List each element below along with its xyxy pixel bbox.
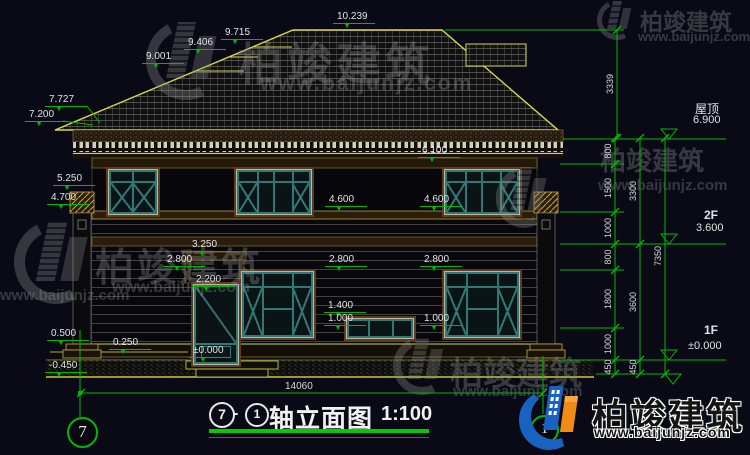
dim-segment: 800	[602, 131, 614, 171]
elevation-label: 1.400	[324, 300, 366, 313]
elevation-label: 0.500	[47, 328, 89, 341]
elevation-label: 9.715	[221, 27, 263, 40]
elevation-label: 0.250	[109, 337, 151, 350]
elevation-label: 2.200	[192, 274, 234, 287]
elevation-label: 6.100	[418, 145, 460, 158]
floor2-value: 3.600	[696, 222, 724, 234]
dim-segment: 450	[627, 347, 639, 387]
elevation-label: 4.600	[325, 194, 367, 207]
title-underline	[209, 429, 429, 433]
title-axis-from: 7	[209, 402, 235, 428]
dim-total-height: 7350	[652, 236, 664, 276]
dim-segment: 1500	[602, 168, 614, 208]
elevation-label: 1.000	[324, 313, 366, 326]
brand-logo-icon	[518, 382, 590, 450]
dim-segment: 800	[602, 237, 614, 277]
floor1-value: ±0.000	[688, 340, 722, 352]
drawing-scale: 1:100	[381, 403, 432, 426]
elevation-label: 2.800	[325, 254, 367, 267]
axis-bubble-7: 7	[67, 417, 98, 448]
title-axis-to: 1	[245, 403, 269, 427]
elevation-label: 9.001	[142, 51, 184, 64]
elevation-label: 3.250	[188, 239, 230, 252]
floor1-label: 1F	[704, 323, 718, 337]
elevation-label: 2.800	[163, 254, 205, 267]
title-underline-thin	[209, 437, 429, 438]
dim-segment: 450	[602, 347, 614, 387]
elevation-label: 7.200	[25, 109, 67, 122]
elevation-label: 7.727	[45, 94, 87, 107]
brand-logo-url: www.baijunjz.com	[594, 424, 731, 440]
elevation-label: 5.250	[53, 173, 95, 186]
dim-segment: 3600	[627, 282, 639, 322]
title-dash: -	[233, 405, 238, 423]
elevation-label: 1.000	[420, 313, 462, 326]
dim-segment: 3300	[627, 171, 639, 211]
elevation-label: ±0.000	[189, 345, 231, 358]
dim-total-width: 14060	[285, 381, 313, 392]
cad-canvas: 柏竣建筑 www.baijunjz.com 柏竣建筑 www.baijunjz.…	[0, 0, 750, 455]
elevation-label: 4.600	[420, 194, 462, 207]
dim-segment: 1800	[602, 279, 614, 319]
elevation-label: 2.800	[420, 254, 462, 267]
roof-level-value: 6.900	[693, 114, 721, 126]
dim-roof-height: 3339	[604, 64, 616, 104]
elevation-label: 10.239	[333, 11, 375, 24]
elevation-label: 4.700	[47, 192, 89, 205]
floor2-label: 2F	[704, 208, 718, 222]
elevation-label: 9.406	[184, 37, 226, 50]
elevation-label: -0.450	[45, 360, 87, 373]
